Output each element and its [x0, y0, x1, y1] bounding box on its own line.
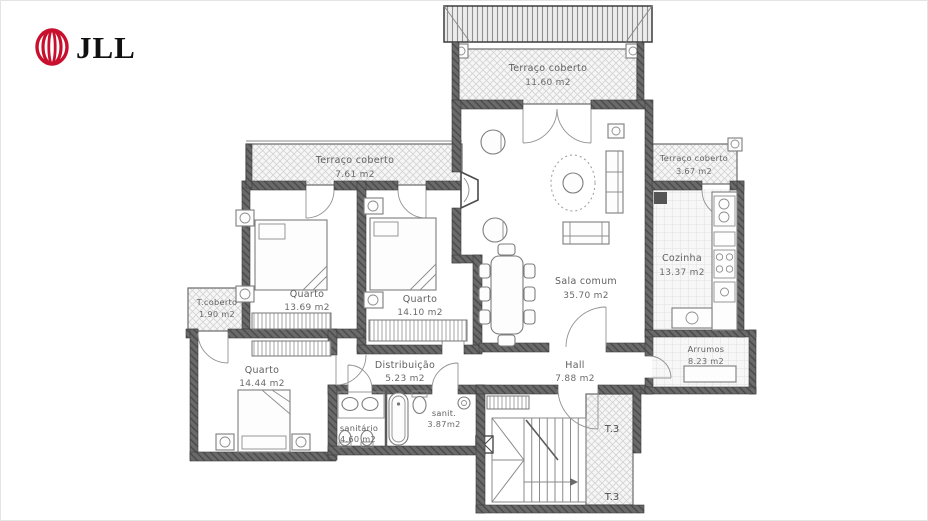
bay-niche	[461, 172, 478, 208]
svg-text:35.70 m2: 35.70 m2	[563, 291, 609, 301]
floor-plan: Terraço coberto 11.60 m2 Terraço coberto…	[0, 0, 928, 521]
room-label-sanit: sanit. 3.87m2	[427, 408, 460, 429]
toilet	[413, 397, 426, 414]
sanit-furniture	[389, 391, 470, 445]
nightstand	[216, 434, 234, 450]
svg-text:Quarto: Quarto	[245, 365, 280, 376]
column	[654, 192, 667, 204]
nightstand	[364, 292, 383, 308]
room-label-quarto-3: Quarto 14.44 m2	[239, 365, 285, 389]
wardrobe	[252, 341, 331, 356]
wardrobe	[252, 313, 331, 329]
washbasin	[342, 398, 358, 411]
svg-text:Terraço coberto: Terraço coberto	[659, 153, 728, 163]
washbasin	[458, 397, 470, 409]
room-label-hall: Hall 7.88 m2	[555, 360, 595, 384]
svg-text:14.10 m2: 14.10 m2	[397, 308, 443, 318]
svg-text:1.90 m2: 1.90 m2	[199, 309, 235, 319]
svg-text:4.60 m2: 4.60 m2	[340, 434, 376, 444]
svg-text:7.61 m2: 7.61 m2	[335, 170, 375, 180]
room-label-distribuicao: Distribuição 5.23 m2	[375, 360, 435, 384]
living-room-furniture	[479, 124, 624, 346]
wardrobe	[369, 320, 467, 341]
washbasin	[362, 398, 378, 411]
lower-counter	[672, 308, 712, 328]
nightstand	[236, 210, 254, 226]
stair-landing-floor	[586, 394, 633, 505]
terrace-top	[444, 6, 652, 104]
svg-text:Quarto: Quarto	[403, 294, 438, 305]
svg-text:Arrumos: Arrumos	[688, 344, 725, 354]
terrace-top-floor	[459, 49, 637, 104]
svg-text:sanitário: sanitário	[340, 423, 378, 433]
nightstand	[292, 434, 310, 450]
double-bed	[255, 220, 327, 290]
room-label-quarto-2: Quarto 14.10 m2	[397, 294, 443, 318]
unit-type-label: T.3	[604, 492, 619, 503]
sofa-right	[606, 151, 623, 213]
svg-text:8.23 m2: 8.23 m2	[688, 356, 724, 366]
arrumos-furniture	[684, 366, 736, 382]
svg-text:3.67 m2: 3.67 m2	[676, 166, 712, 176]
stair-closet	[487, 396, 529, 409]
svg-text:Terraço coberto: Terraço coberto	[315, 155, 394, 166]
bedroom2-furniture	[364, 198, 467, 341]
svg-text:Quarto: Quarto	[290, 289, 325, 300]
svg-text:11.60 m2: 11.60 m2	[525, 78, 571, 88]
dining-table	[491, 256, 523, 334]
kitchen-counter	[712, 192, 737, 330]
svg-text:Cozinha: Cozinha	[662, 253, 702, 264]
storage-box	[684, 366, 736, 382]
bedroom3-furniture	[216, 341, 331, 452]
svg-text:5.23 m2: 5.23 m2	[385, 374, 425, 384]
svg-text:14.44 m2: 14.44 m2	[239, 379, 285, 389]
terrace-right-floor	[652, 144, 737, 184]
bed	[370, 218, 436, 290]
svg-text:7.88 m2: 7.88 m2	[555, 374, 595, 384]
nightstand	[236, 286, 254, 302]
round-table	[563, 173, 583, 193]
nightstand	[364, 198, 383, 214]
svg-text:13.37 m2: 13.37 m2	[659, 268, 705, 278]
stairwell	[476, 394, 633, 505]
svg-text:Sala comum: Sala comum	[555, 276, 617, 287]
svg-text:3.87m2: 3.87m2	[427, 419, 460, 429]
awning	[444, 6, 652, 42]
room-label-sala: Sala comum 35.70 m2	[555, 276, 617, 301]
svg-text:Distribuição: Distribuição	[375, 360, 435, 371]
bed	[238, 390, 290, 452]
room-label-sanitario: sanitário 4.60 m2	[340, 423, 378, 444]
svg-text:Hall: Hall	[565, 360, 584, 371]
svg-text:sanit.: sanit.	[432, 408, 456, 418]
side-table	[608, 124, 624, 138]
svg-text:T.coberto: T.coberto	[196, 297, 238, 307]
unit-type-label: T.3	[604, 424, 619, 435]
svg-text:Terraço coberto: Terraço coberto	[508, 63, 587, 74]
svg-text:13.69 m2: 13.69 m2	[284, 303, 330, 313]
room-label-quarto-1: Quarto 13.69 m2	[284, 289, 330, 313]
